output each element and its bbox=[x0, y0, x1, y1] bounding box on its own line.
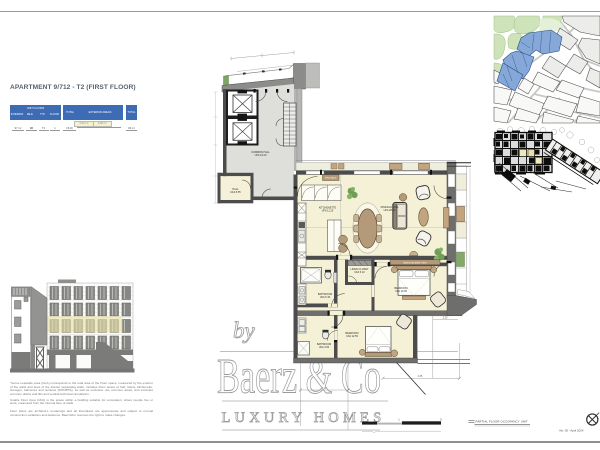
svg-text:UFA 4.50: UFA 4.50 bbox=[319, 346, 330, 349]
svg-text:SHOE RACK: SHOE RACK bbox=[325, 177, 337, 180]
svg-text:UFA 11.25: UFA 11.25 bbox=[322, 210, 334, 213]
svg-text:PARTIAL FLOOR OCCUPANCY UNIT: PARTIAL FLOOR OCCUPANCY UNIT bbox=[476, 420, 529, 424]
svg-text:4.35: 4.35 bbox=[418, 375, 423, 378]
svg-text:1: 1 bbox=[398, 417, 400, 421]
svg-text:UFA 5.30: UFA 5.30 bbox=[320, 296, 331, 299]
svg-text:UFA 15.20: UFA 15.20 bbox=[255, 154, 267, 157]
svg-text:UFA 5.10: UFA 5.10 bbox=[354, 271, 365, 274]
svg-text:by: by bbox=[233, 318, 256, 343]
svg-text:UFA 28.40: UFA 28.40 bbox=[384, 209, 396, 212]
svg-text:Ver. 00 - April 2024: Ver. 00 - April 2024 bbox=[559, 428, 584, 432]
svg-text:3.10: 3.10 bbox=[322, 387, 327, 390]
svg-text:UFA 12.55: UFA 12.55 bbox=[346, 335, 358, 338]
svg-text:2.20: 2.20 bbox=[443, 317, 448, 320]
svg-text:WARDROBE AREA • DESK: WARDROBE AREA • DESK bbox=[403, 262, 427, 265]
svg-text:UFA 13.05: UFA 13.05 bbox=[395, 290, 407, 293]
svg-text:5: 5 bbox=[440, 417, 442, 421]
svg-text:UFA 8.55: UFA 8.55 bbox=[230, 191, 241, 194]
svg-text:LUXURY HOMES: LUXURY HOMES bbox=[222, 410, 386, 426]
